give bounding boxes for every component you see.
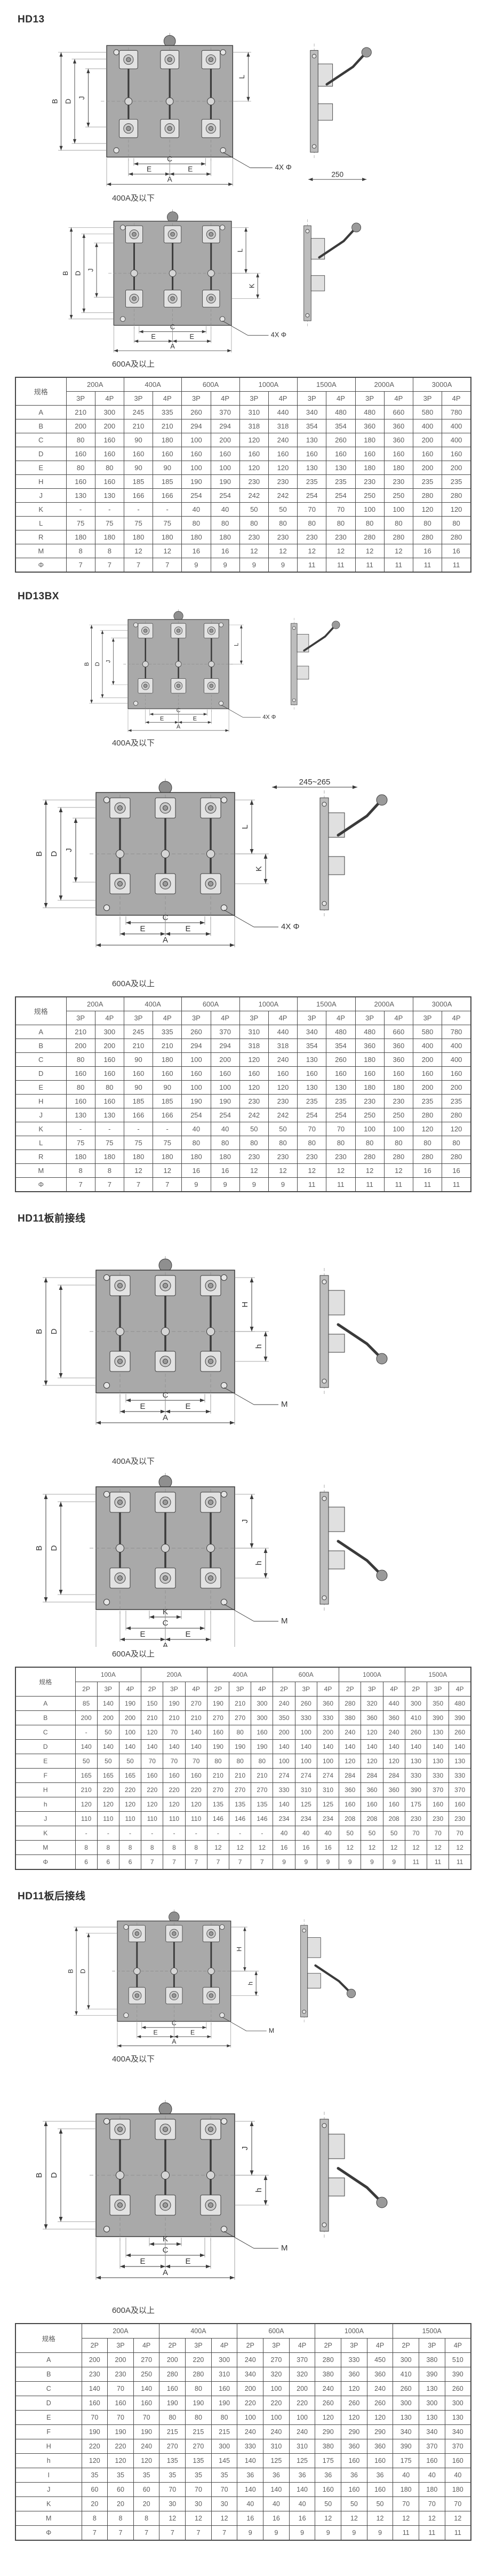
value-cell: 130 — [298, 1081, 326, 1095]
handle-ball-icon — [347, 1989, 355, 1998]
value-cell: 9 — [239, 1178, 268, 1192]
value-cell: 70 — [108, 2411, 134, 2425]
row-label-cell: B — [15, 1711, 75, 1725]
row-label-cell: Φ — [15, 558, 66, 573]
svg-text:D: D — [50, 1328, 59, 1334]
value-cell: 210 — [141, 1711, 163, 1725]
value-cell: 16 — [413, 544, 442, 558]
value-cell: 180 — [124, 530, 153, 544]
switch-dimension-drawing: BDJhKCEEAM — [21, 1471, 405, 1647]
value-cell: 75 — [153, 517, 182, 530]
pole-header-cell: 4P — [153, 1011, 182, 1025]
value-cell: 70 — [445, 2497, 471, 2511]
value-cell: 330 — [317, 1711, 339, 1725]
value-cell: 130 — [95, 1108, 124, 1122]
value-cell: 80 — [239, 517, 268, 530]
value-cell: 230 — [108, 2367, 134, 2382]
bolt-note-label: M — [269, 2027, 274, 2034]
section-hd13bx: HD13BX BDJLCEEA4X Φ 400A及以下 BDJLKCEEA4X … — [0, 591, 480, 1192]
value-cell: 160 — [355, 447, 384, 461]
value-cell: 40 — [263, 2497, 290, 2511]
table-row: A851401901501902701902103002402603602803… — [15, 1697, 471, 1711]
value-cell: 160 — [182, 1067, 211, 1081]
svg-text:E: E — [140, 924, 145, 933]
value-cell: 320 — [361, 1697, 383, 1711]
value-cell: 400 — [442, 419, 471, 433]
technical-drawing: BDJLCEEA4X Φ250 — [21, 31, 480, 191]
pole-header-cell: 3P — [341, 2339, 367, 2353]
value-cell: 200 — [413, 461, 442, 475]
spec-header-cell: 规格 — [15, 2324, 82, 2353]
value-cell: - — [95, 503, 124, 517]
pole-header-cell: 3P — [298, 392, 326, 406]
row-label-cell: F — [15, 1769, 75, 1783]
pole-header-cell: 4P — [119, 1682, 141, 1697]
value-cell: 300 — [211, 2439, 237, 2454]
svg-text:h: h — [247, 1981, 254, 1985]
value-cell: 200 — [82, 2353, 108, 2367]
value-cell: 140 — [97, 1697, 119, 1711]
value-cell: 36 — [237, 2468, 263, 2483]
value-cell: 160 — [66, 447, 95, 461]
table-row: H210220220220220220270270270330310310360… — [15, 1783, 471, 1797]
value-cell: 35 — [186, 2468, 212, 2483]
value-cell: 220 — [108, 2439, 134, 2454]
value-cell: - — [66, 1122, 95, 1136]
value-cell: 12 — [268, 1164, 297, 1178]
value-cell: 140 — [295, 1740, 317, 1754]
row-label-cell: M — [15, 1841, 75, 1855]
value-cell: 240 — [268, 1053, 297, 1067]
value-cell: 190 — [211, 475, 239, 489]
value-cell: 70 — [405, 1826, 427, 1841]
value-cell: 300 — [251, 1697, 273, 1711]
switch-front-view — [112, 1909, 236, 2025]
value-cell: 80 — [95, 461, 124, 475]
value-cell: 40 — [295, 1826, 317, 1841]
table-row: J606060707070140140140160160160180180180 — [15, 2483, 471, 2497]
value-cell: 120 — [239, 433, 268, 447]
table-row: J130130166166254254242242254254250250280… — [15, 1108, 471, 1122]
value-cell: 190 — [251, 1740, 273, 1754]
value-cell: 180 — [153, 1053, 182, 1067]
value-cell: 100 — [182, 1081, 211, 1095]
value-cell: 190 — [211, 2396, 237, 2411]
value-cell: 235 — [326, 1095, 355, 1108]
value-cell: 310 — [239, 1025, 268, 1039]
value-cell: 12 — [124, 1164, 153, 1178]
value-cell: 380 — [419, 2353, 445, 2367]
value-cell: 185 — [124, 475, 153, 489]
svg-text:D: D — [50, 851, 59, 857]
rating-header-cell: 200A — [82, 2324, 159, 2339]
figure: BDJhKCEEAM 600A及以上 — [21, 2068, 480, 2316]
value-cell: 12 — [341, 2511, 367, 2526]
value-cell: 340 — [393, 2425, 419, 2439]
value-cell: 180 — [182, 1150, 211, 1164]
value-cell: 80 — [95, 1081, 124, 1095]
drawing-caption: 400A及以下 — [21, 1455, 245, 1467]
value-cell: 260 — [182, 1025, 211, 1039]
value-cell: 7 — [141, 1855, 163, 1870]
pole-header-cell: 3P — [66, 392, 95, 406]
pole-header-cell: 4P — [251, 1682, 273, 1697]
value-cell: 16 — [295, 1841, 317, 1855]
value-cell: 12 — [186, 2511, 212, 2526]
pole-header-cell: 3P — [186, 2339, 212, 2353]
table-row: M888121212161616121212121212 — [15, 2511, 471, 2526]
value-cell: 70 — [211, 2483, 237, 2497]
row-label-cell: H — [15, 475, 66, 489]
value-cell: 120 — [185, 1797, 207, 1812]
value-cell: 235 — [413, 475, 442, 489]
value-cell: 330 — [295, 1711, 317, 1725]
value-cell: 50 — [97, 1754, 119, 1769]
value-cell: 230 — [384, 1095, 413, 1108]
svg-text:A: A — [163, 1641, 168, 1647]
value-cell: 340 — [298, 1025, 326, 1039]
value-cell: 300 — [251, 1711, 273, 1725]
value-cell: 240 — [315, 2382, 341, 2396]
value-cell: 40 — [273, 1826, 295, 1841]
value-cell: 254 — [182, 1108, 211, 1122]
table-row: B230230250280280310340320320380360360410… — [15, 2367, 471, 2382]
value-cell: 12 — [153, 544, 182, 558]
value-cell: 230 — [268, 530, 297, 544]
switch-front-view — [108, 209, 237, 329]
value-cell: - — [124, 1122, 153, 1136]
table-row: C-50100120701401608016020010020024012024… — [15, 1725, 471, 1740]
value-cell: 280 — [355, 1150, 384, 1164]
value-cell: 9 — [211, 1178, 239, 1192]
value-cell: 230 — [239, 475, 268, 489]
rating-header-cell: 1000A — [315, 2324, 393, 2339]
value-cell: 20 — [108, 2497, 134, 2511]
value-cell: 130 — [298, 1053, 326, 1067]
value-cell: 318 — [239, 419, 268, 433]
value-cell: 11 — [393, 2526, 419, 2541]
rating-header-cell: 3000A — [413, 377, 471, 392]
value-cell: 360 — [384, 1039, 413, 1053]
value-cell: 230 — [268, 1150, 297, 1164]
value-cell: 146 — [229, 1812, 251, 1826]
value-cell: 7 — [207, 1855, 229, 1870]
value-cell: 254 — [326, 1108, 355, 1122]
value-cell: 12 — [393, 2511, 419, 2526]
value-cell: 380 — [339, 1711, 361, 1725]
value-cell: 200 — [237, 2382, 263, 2396]
value-cell: 90 — [153, 461, 182, 475]
value-cell: 140 — [163, 1740, 185, 1754]
rating-header-cell: 3000A — [413, 997, 471, 1011]
value-cell: 360 — [383, 1783, 405, 1797]
pole-header-cell: 4P — [384, 392, 413, 406]
switch-dimension-drawing: BDJhKCEEAM — [21, 2068, 405, 2303]
value-cell: 140 — [449, 1740, 471, 1754]
value-cell: 200 — [95, 419, 124, 433]
value-cell: 310 — [239, 406, 268, 419]
switch-front-view — [90, 1256, 241, 1397]
bolt-note-label: 4X Φ — [281, 922, 300, 931]
rating-header-cell: 400A — [124, 377, 181, 392]
value-cell: 40 — [393, 2468, 419, 2483]
table-row: D160160160190190190220220220260260260300… — [15, 2396, 471, 2411]
value-cell: 160 — [211, 1067, 239, 1081]
pole-header-cell: 3P — [239, 1011, 268, 1025]
value-cell: 190 — [119, 1697, 141, 1711]
mounting-bolt-icon — [219, 623, 223, 627]
value-cell: 30 — [159, 2497, 186, 2511]
value-cell: 220 — [237, 2396, 263, 2411]
table-row: h120120120120120120135135135140125125160… — [15, 1797, 471, 1812]
value-cell: 8 — [95, 1164, 124, 1178]
value-cell: 75 — [124, 1136, 153, 1150]
svg-text:A: A — [177, 724, 181, 730]
svg-text:245~265: 245~265 — [299, 778, 331, 787]
mounting-bolt-icon — [221, 1383, 227, 1389]
value-cell: 230 — [298, 530, 326, 544]
value-cell: 110 — [119, 1812, 141, 1826]
value-cell: 160 — [341, 2483, 367, 2497]
value-cell: 200 — [211, 1053, 239, 1067]
switch-side-view — [304, 219, 361, 327]
value-cell: 370 — [289, 2353, 315, 2367]
value-cell: 120 — [119, 1797, 141, 1812]
pole-header-cell: 4P — [449, 1682, 471, 1697]
value-cell: 160 — [413, 1067, 442, 1081]
pole-header-cell: 2P — [393, 2339, 419, 2353]
svg-text:A: A — [163, 2268, 168, 2277]
value-cell: 100 — [289, 2411, 315, 2425]
row-label-cell: C — [15, 1053, 66, 1067]
value-cell: 120 — [163, 1797, 185, 1812]
row-label-cell: A — [15, 1697, 75, 1711]
rating-header-cell: 1500A — [298, 997, 355, 1011]
bolt-note-label: M — [281, 1400, 288, 1409]
mounting-bolt-icon — [121, 316, 125, 321]
value-cell: 165 — [97, 1769, 119, 1783]
value-cell: 220 — [97, 1783, 119, 1797]
value-cell: 16 — [263, 2511, 290, 2526]
value-cell: 360 — [361, 1711, 383, 1725]
value-cell: 350 — [427, 1697, 449, 1711]
value-cell: 160 — [315, 2483, 341, 2497]
catalog-page: HD13 BDJLCEEA4X Φ250 400A及以下 BDJLKCEEA4X… — [0, 14, 480, 2541]
pole-header-cell: 2P — [315, 2339, 341, 2353]
value-cell: 8 — [66, 1164, 95, 1178]
value-cell: 110 — [75, 1812, 97, 1826]
section-title: HD11板后接线 — [18, 1888, 480, 1903]
svg-text:E: E — [140, 2257, 145, 2266]
switch-front-view — [90, 1473, 241, 1614]
mounting-bolt-icon — [221, 2119, 227, 2125]
table-row: Φ77779999111111111111 — [15, 558, 471, 573]
value-cell: 50 — [119, 1754, 141, 1769]
row-label-cell: K — [15, 503, 66, 517]
value-cell: 9 — [315, 2526, 341, 2541]
value-cell: 50 — [361, 1826, 383, 1841]
value-cell: 190 — [211, 1095, 239, 1108]
value-cell: 80 — [211, 2411, 237, 2425]
svg-text:E: E — [185, 924, 190, 933]
value-cell: 274 — [273, 1769, 295, 1783]
technical-drawing: BDHhCEEAM — [21, 1908, 480, 2052]
value-cell: 354 — [326, 1039, 355, 1053]
value-cell: 120 — [82, 2454, 108, 2468]
value-cell: 9 — [295, 1855, 317, 1870]
value-cell: 70 — [108, 2382, 134, 2396]
value-cell: 80 — [326, 1136, 355, 1150]
value-cell: 380 — [315, 2367, 341, 2382]
pole-header-cell: 3P — [163, 1682, 185, 1697]
value-cell: 75 — [124, 517, 153, 530]
mounting-bolt-icon — [220, 316, 225, 321]
pole-header-cell: 3P — [97, 1682, 119, 1697]
value-cell: 8 — [66, 544, 95, 558]
rating-header-cell: 600A — [182, 997, 239, 1011]
value-cell: 254 — [326, 489, 355, 503]
value-cell: 180 — [153, 530, 182, 544]
value-cell: 135 — [251, 1797, 273, 1812]
pole-header-cell: 2P — [141, 1682, 163, 1697]
value-cell: 230 — [384, 475, 413, 489]
value-cell: 75 — [95, 517, 124, 530]
value-cell: 90 — [124, 433, 153, 447]
value-cell: 220 — [263, 2396, 290, 2411]
row-label-cell: Φ — [15, 1178, 66, 1192]
table-row: A200200270200220300240270370280330450300… — [15, 2353, 471, 2367]
mounting-bolt-icon — [219, 701, 223, 706]
switch-side-view — [320, 1268, 387, 1395]
value-cell: 11 — [384, 558, 413, 573]
figure: BDJLKCEEA4X Φ 600A及以上 — [21, 208, 480, 369]
value-cell: 360 — [317, 1697, 339, 1711]
table-row: R180180180180180180230230230230280280280… — [15, 1150, 471, 1164]
value-cell: 340 — [445, 2425, 471, 2439]
table-row: H160160185185190190230230235235230230235… — [15, 475, 471, 489]
value-cell: 160 — [419, 2454, 445, 2468]
value-cell: 9 — [182, 558, 211, 573]
value-cell: 270 — [159, 2439, 186, 2454]
value-cell: 12 — [315, 2511, 341, 2526]
value-cell: - — [141, 1826, 163, 1841]
value-cell: 300 — [445, 2396, 471, 2411]
row-label-cell: F — [15, 2425, 82, 2439]
value-cell: 318 — [268, 1039, 297, 1053]
value-cell: 90 — [124, 1053, 153, 1067]
value-cell: 300 — [211, 2353, 237, 2367]
value-cell: 12 — [427, 1841, 449, 1855]
value-cell: 240 — [133, 2439, 159, 2454]
value-cell: 230 — [82, 2367, 108, 2382]
spec-table-container: 规格200A400A600A1000A1500A2000A3000A3P4P3P… — [15, 996, 480, 1192]
handle-ball-icon — [332, 621, 340, 629]
value-cell: 100 — [295, 1754, 317, 1769]
value-cell: 230 — [355, 475, 384, 489]
rating-header-cell: 600A — [237, 2324, 315, 2339]
svg-text:E: E — [140, 1402, 145, 1411]
technical-drawing: BDJLKCEEA4X Φ245~265 — [21, 752, 480, 977]
value-cell: 80 — [182, 517, 211, 530]
switch-dimension-drawing: BDJLCEEA4X Φ250 — [21, 31, 405, 191]
value-cell: 146 — [251, 1812, 273, 1826]
value-cell: 284 — [339, 1769, 361, 1783]
handle-ball-icon — [377, 1353, 387, 1364]
value-cell: 9 — [237, 2526, 263, 2541]
value-cell: 75 — [95, 1136, 124, 1150]
value-cell: 330 — [427, 1769, 449, 1783]
value-cell: 100 — [211, 461, 239, 475]
value-cell: 360 — [339, 1783, 361, 1797]
table-row: E505050707070808080100100100120120120130… — [15, 1754, 471, 1769]
pole-header-cell: 4P — [367, 2339, 393, 2353]
value-cell: 6 — [75, 1855, 97, 1870]
value-cell: 80 — [326, 517, 355, 530]
value-cell: 7 — [133, 2526, 159, 2541]
svg-text:L: L — [234, 643, 240, 646]
value-cell: 120 — [361, 1725, 383, 1740]
value-cell: 240 — [367, 2382, 393, 2396]
value-cell: 60 — [108, 2483, 134, 2497]
value-cell: 6 — [119, 1855, 141, 1870]
pole-header-cell: 3P — [361, 1682, 383, 1697]
value-cell: 260 — [182, 406, 211, 419]
table-row: M888888121212161616121212121212 — [15, 1841, 471, 1855]
svg-text:B: B — [51, 99, 59, 104]
table-row: K202020303030404040505050707070 — [15, 2497, 471, 2511]
value-cell: 175 — [405, 1797, 427, 1812]
value-cell: 120 — [239, 461, 268, 475]
value-cell: 290 — [341, 2425, 367, 2439]
mounting-bolt-icon — [220, 225, 225, 230]
value-cell: 200 — [413, 1081, 442, 1095]
value-cell: 16 — [237, 2511, 263, 2526]
value-cell: 240 — [273, 1697, 295, 1711]
value-cell: 8 — [133, 2511, 159, 2526]
value-cell: 160 — [211, 2382, 237, 2396]
mounting-bolt-icon — [121, 225, 125, 230]
svg-text:E: E — [151, 332, 155, 340]
rating-header-cell: 1500A — [393, 2324, 471, 2339]
pole-header-cell: 3P — [419, 2339, 445, 2353]
value-cell: 360 — [355, 1039, 384, 1053]
technical-drawing: BDJhKCEEAM — [21, 2068, 480, 2303]
value-cell: 80 — [66, 1081, 95, 1095]
value-cell: 30 — [186, 2497, 212, 2511]
value-cell: 166 — [153, 1108, 182, 1122]
switch-side-view — [301, 1919, 356, 2023]
value-cell: 300 — [393, 2396, 419, 2411]
value-cell: 180 — [384, 1081, 413, 1095]
value-cell: 140 — [289, 2483, 315, 2497]
value-cell: 8 — [108, 2511, 134, 2526]
value-cell: 9 — [268, 558, 297, 573]
value-cell: 145 — [211, 2454, 237, 2468]
value-cell: 120 — [383, 1754, 405, 1769]
value-cell: 320 — [289, 2367, 315, 2382]
figure: BDJhKCEEAM 600A及以上 — [21, 1471, 480, 1659]
value-cell: 390 — [445, 2367, 471, 2382]
value-cell: 70 — [393, 2497, 419, 2511]
value-cell: 280 — [384, 530, 413, 544]
value-cell: 300 — [393, 2353, 419, 2367]
mounting-bolt-icon — [134, 623, 138, 627]
value-cell: 135 — [159, 2454, 186, 2468]
value-cell: 160 — [182, 447, 211, 461]
value-cell: 330 — [237, 2439, 263, 2454]
value-cell: 354 — [326, 419, 355, 433]
row-label-cell: B — [15, 2367, 82, 2382]
